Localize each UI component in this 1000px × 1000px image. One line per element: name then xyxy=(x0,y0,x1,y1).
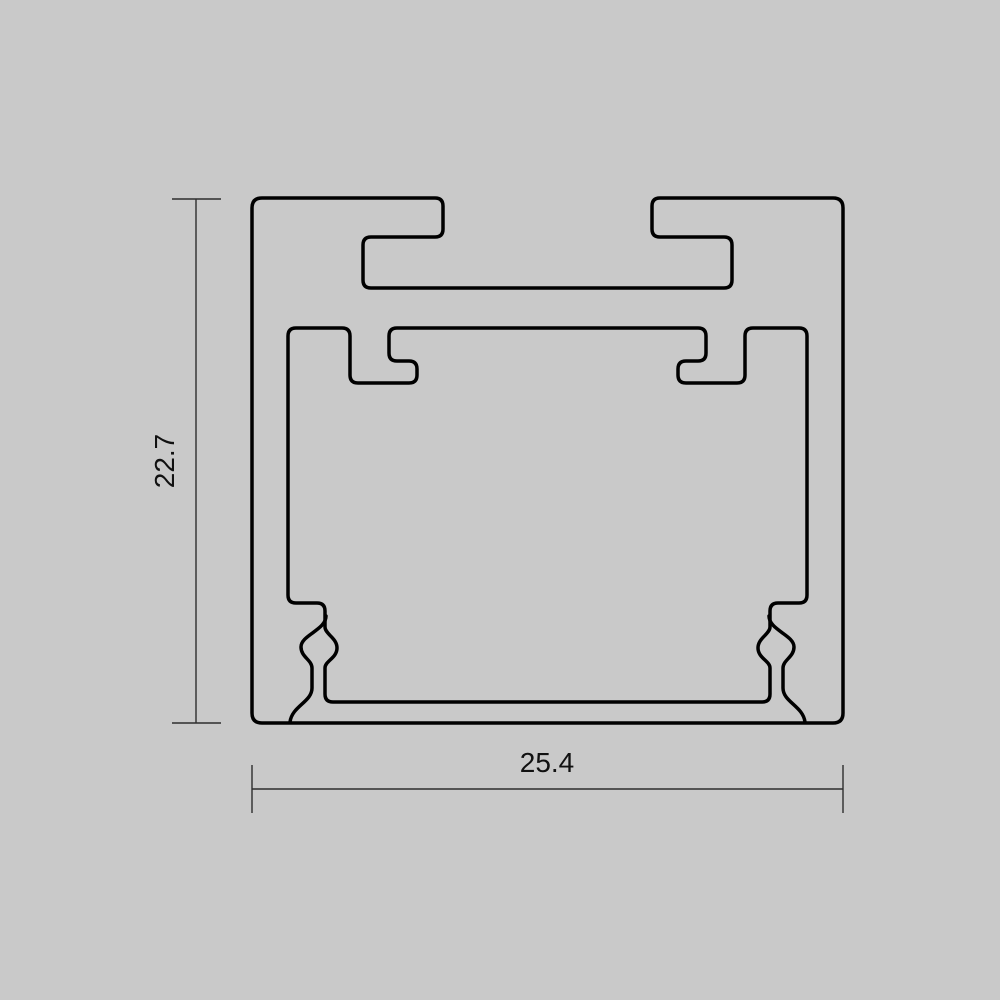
width-dimension-label: 25.4 xyxy=(520,747,575,778)
height-dimension-label: 22.7 xyxy=(149,434,180,489)
technical-drawing-page: 22.7 25.4 xyxy=(0,0,1000,1000)
drawing-background xyxy=(0,0,1000,1000)
profile-technical-drawing: 22.7 25.4 xyxy=(0,0,1000,1000)
